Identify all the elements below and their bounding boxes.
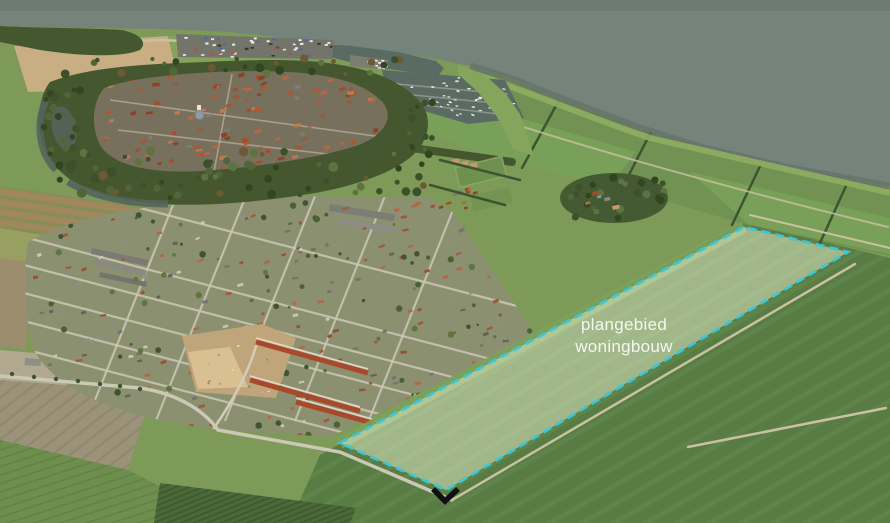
plan-label-line2: woningbouw — [566, 336, 682, 358]
farmstead — [560, 173, 668, 223]
plan-label-line1: plangebied — [566, 314, 682, 336]
aerial-plan-image: plangebied woningbouw — [0, 0, 890, 523]
church-dome — [195, 111, 204, 120]
horizon — [0, 0, 890, 11]
plan-area-label: plangebied woningbouw — [566, 314, 682, 358]
aerial-photo-svg — [0, 0, 890, 523]
